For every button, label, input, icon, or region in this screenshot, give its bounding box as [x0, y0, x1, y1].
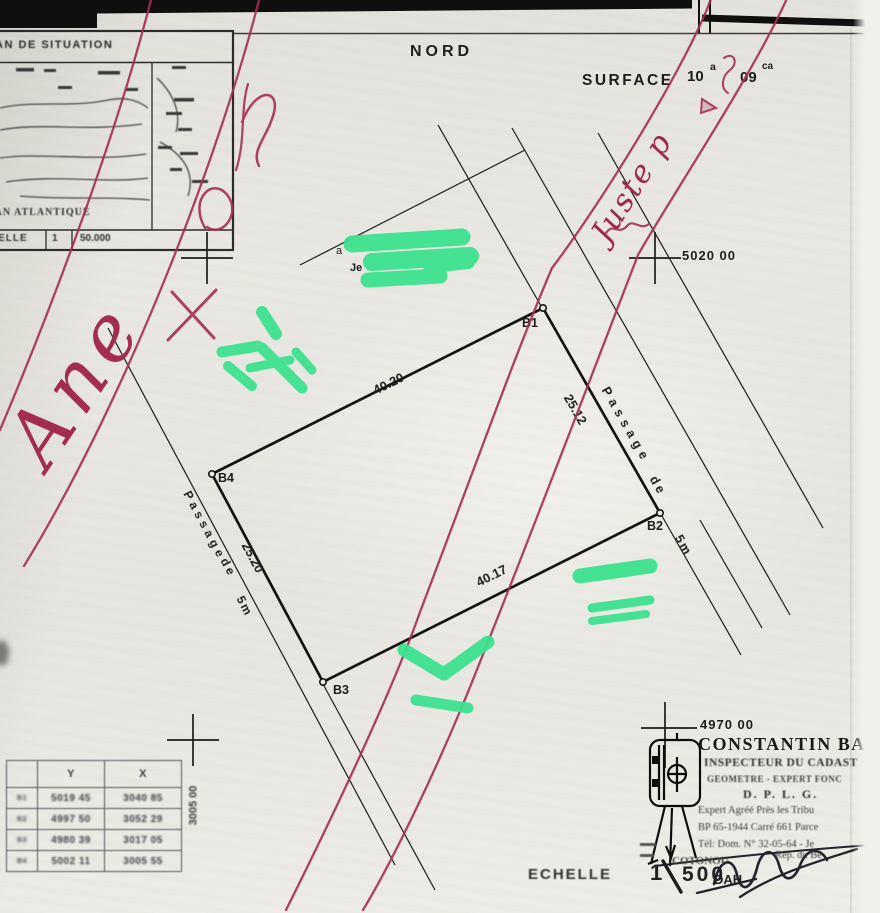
paper-crease: [850, 28, 852, 913]
highlighter-blob-top: [430, 262, 468, 266]
highlighter-scribble-left: [222, 346, 258, 352]
highlighter-marks: [0, 0, 880, 913]
highlighter-check-bottom: [444, 642, 488, 674]
highlighter-blob-top: [352, 237, 462, 244]
highlighter-blob-top: [368, 276, 440, 280]
scanned-cadastral-plan: NORD SURFACE 10 a 09 ca 5020 00 4970 00 …: [0, 0, 880, 913]
highlighter-mark-right: [592, 600, 650, 608]
paper-edge-strip: [853, 0, 880, 913]
highlighter-mark-right: [580, 566, 650, 576]
highlighter-check-bottom: [416, 700, 468, 708]
highlighter-mark-right: [592, 614, 646, 621]
highlighter-check-bottom: [404, 650, 444, 674]
highlighter-scribble-left: [262, 312, 276, 334]
highlighter-scribble-left: [296, 352, 312, 370]
